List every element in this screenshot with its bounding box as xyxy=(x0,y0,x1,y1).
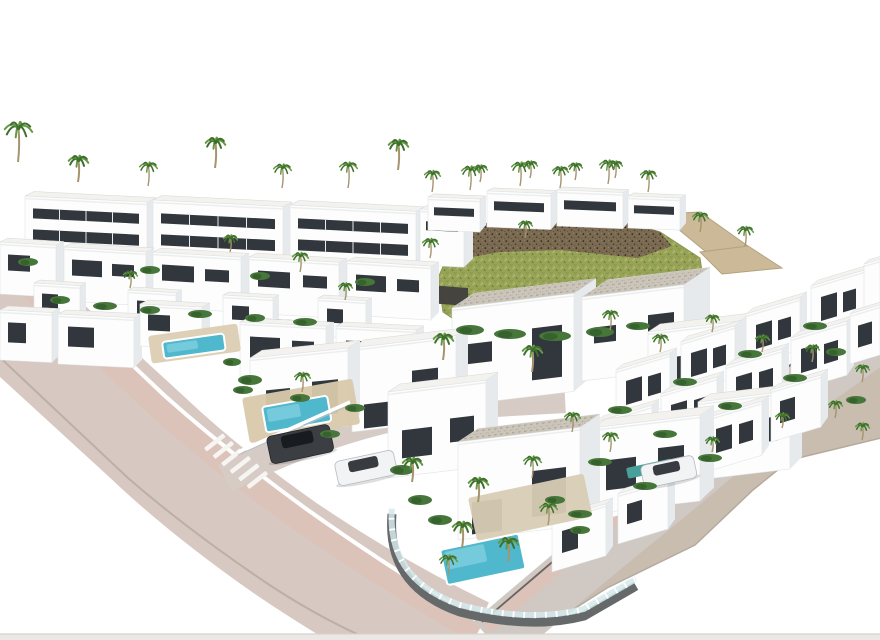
palm-crown-center xyxy=(834,403,837,406)
palm-crown-center xyxy=(229,237,232,240)
palm-crown-center xyxy=(559,169,562,172)
villa xyxy=(850,301,880,364)
palm-trunk xyxy=(398,144,399,170)
palm-crown-center xyxy=(129,273,132,276)
villa xyxy=(864,255,880,310)
palm-crown-center xyxy=(477,480,481,484)
villa-window xyxy=(648,373,661,397)
shrub-shade xyxy=(676,380,687,386)
palm-crown-center xyxy=(547,506,550,509)
shrub-shade xyxy=(656,432,667,438)
villa-development-render xyxy=(0,0,880,640)
shrub-shade xyxy=(806,324,817,330)
villa-window xyxy=(402,427,432,459)
villa-window xyxy=(858,321,872,347)
villa-window xyxy=(739,420,753,444)
villa-window xyxy=(780,397,795,424)
palm-crown-center xyxy=(531,348,535,352)
villa-window xyxy=(68,327,94,348)
palm-crown-center xyxy=(861,425,864,428)
villa-side-face xyxy=(762,395,769,455)
palm-crown-center xyxy=(442,336,446,340)
villa xyxy=(428,194,486,233)
shrub-shade xyxy=(348,406,357,412)
shrub-shade xyxy=(411,497,422,504)
shrub-shade xyxy=(293,396,302,402)
shrub-shade xyxy=(358,280,367,286)
shrub-shade xyxy=(253,274,262,280)
shrub-shade xyxy=(591,460,602,466)
shrub-shade xyxy=(460,327,473,334)
shrub-shade xyxy=(236,388,245,394)
shrub-shade xyxy=(548,498,557,504)
villa-window xyxy=(162,265,194,283)
villa-window xyxy=(148,314,170,331)
palm-trunk xyxy=(532,350,533,372)
villa-window xyxy=(691,348,707,377)
palm-crown-center xyxy=(347,165,350,168)
palm-trunk xyxy=(78,160,79,182)
villa xyxy=(557,187,629,229)
palm-crown-center xyxy=(397,142,401,146)
villa-window xyxy=(72,259,102,277)
villa-window xyxy=(8,322,26,343)
palm-crown-center xyxy=(469,169,472,172)
palm-crown-center xyxy=(609,435,612,438)
villa-window xyxy=(713,345,726,369)
palm-crown-center xyxy=(529,163,532,166)
shrub-shade xyxy=(241,377,252,384)
palm-crown-center xyxy=(519,165,522,168)
palm-crown-center xyxy=(507,540,511,544)
shrub-shade xyxy=(573,528,582,534)
palm-crown-center xyxy=(461,524,465,528)
palm-trunk xyxy=(443,338,444,360)
shrub-shade xyxy=(431,517,442,524)
villa-window xyxy=(466,341,492,364)
bottom-strip-band xyxy=(0,634,880,640)
villa-window xyxy=(434,207,474,217)
shrub-shade xyxy=(571,512,582,518)
palm-crown-center xyxy=(214,140,218,144)
palm-crown-center xyxy=(761,337,764,340)
palm-crown-center xyxy=(781,415,784,418)
shrub-shade xyxy=(393,467,404,474)
palm-crown-center xyxy=(609,313,612,316)
palm-crown-center xyxy=(531,459,534,462)
shrub-shade xyxy=(611,408,622,414)
shrub-shade xyxy=(849,398,858,404)
villa-window xyxy=(626,376,642,405)
villa-window xyxy=(778,317,791,341)
shrub-shade xyxy=(543,333,557,340)
shrub-shade xyxy=(53,298,62,304)
villa xyxy=(58,310,142,369)
shrub-shade xyxy=(143,268,152,274)
villa-side-face xyxy=(821,369,828,427)
shrub-shade xyxy=(248,316,257,322)
shrub-shade xyxy=(296,320,307,326)
palm-crown-center xyxy=(299,255,302,258)
palm-crown-center xyxy=(301,375,304,378)
villa-side-face xyxy=(700,406,714,501)
palm-crown-center xyxy=(431,173,434,176)
palm-crown-center xyxy=(574,165,577,168)
palm-crown-center xyxy=(571,415,574,418)
bottom-strip xyxy=(0,634,880,640)
shrub-shade xyxy=(21,260,30,266)
palm-crown-center xyxy=(861,367,864,370)
shrub-shade xyxy=(225,360,233,366)
villa-window xyxy=(843,289,856,313)
palm-crown-center xyxy=(17,126,21,130)
palm-crown-center xyxy=(699,215,702,218)
aerial-render-page xyxy=(0,0,880,640)
shrub-shade xyxy=(590,329,603,336)
villa-window xyxy=(821,292,837,321)
shrub-shade xyxy=(323,432,332,438)
palm-crown-center xyxy=(77,158,81,162)
palm-crown-center xyxy=(811,347,814,350)
palm-crown-center xyxy=(524,223,527,226)
shrub-shade xyxy=(96,304,107,310)
villa-window xyxy=(327,309,343,324)
palm-crown-center xyxy=(147,165,150,168)
shrub-shade xyxy=(143,308,152,314)
palm-crown-center xyxy=(479,167,482,170)
villa-front-face xyxy=(864,259,880,310)
villa-side-face xyxy=(606,498,613,556)
shrub-shade xyxy=(701,456,712,462)
palm-crown-center xyxy=(411,460,415,464)
palm-crown-center xyxy=(711,439,714,442)
shrub-shade xyxy=(829,350,838,356)
shrub-shade xyxy=(721,404,732,410)
palm-trunk xyxy=(462,526,463,548)
palm-trunk xyxy=(215,142,216,168)
villa-window xyxy=(397,279,419,292)
palm-crown-center xyxy=(711,317,714,320)
palm-crown-center xyxy=(447,558,450,561)
palm-crown-center xyxy=(429,241,432,244)
shrub-shade xyxy=(636,484,647,490)
villa xyxy=(628,193,686,231)
palm-crown-center xyxy=(744,229,747,232)
villa-window xyxy=(205,269,229,282)
palm-crown-center xyxy=(647,173,650,176)
palm-crown-center xyxy=(659,337,662,340)
palm-trunk xyxy=(508,542,509,562)
palm-trunk xyxy=(18,128,19,162)
palm-trunk xyxy=(412,462,413,482)
palm-crown-center xyxy=(281,167,284,170)
palm-trunk xyxy=(478,482,479,502)
shrub-shade xyxy=(741,352,752,358)
scene-svg xyxy=(0,0,880,640)
palm-crown-center xyxy=(614,163,617,166)
shrub-shade xyxy=(629,324,640,330)
shrub-shade xyxy=(786,376,797,382)
shrub-shade xyxy=(191,312,202,318)
villa-window xyxy=(303,275,327,288)
villa xyxy=(0,306,60,363)
palm-crown-center xyxy=(344,285,347,288)
shrub-shade xyxy=(498,331,512,338)
villa-side-face xyxy=(431,262,439,321)
villa-window xyxy=(634,205,674,215)
